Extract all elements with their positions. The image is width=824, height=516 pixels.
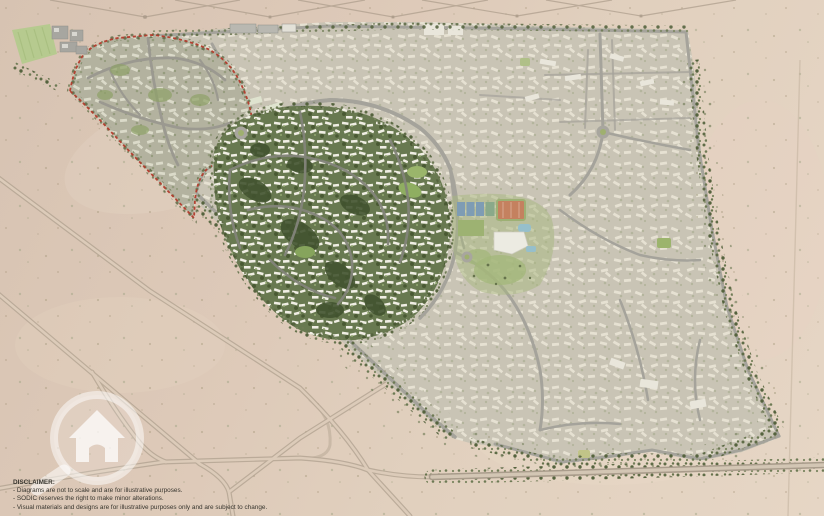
masterplan-map: DISCLAIMER: - Diagrams are not to scale … [0,0,824,516]
disclaimer-line: - Diagrams are not to scale and are for … [13,487,267,495]
disclaimer-line: - SODIC reserves the right to make minor… [13,495,267,503]
magnifier-house-icon [37,395,140,489]
disclaimer: DISCLAIMER: - Diagrams are not to scale … [13,479,267,512]
disclaimer-heading: DISCLAIMER: [13,479,267,487]
disclaimer-line: - Visual materials and designs are for i… [13,504,267,512]
watermark-layer [0,0,824,516]
